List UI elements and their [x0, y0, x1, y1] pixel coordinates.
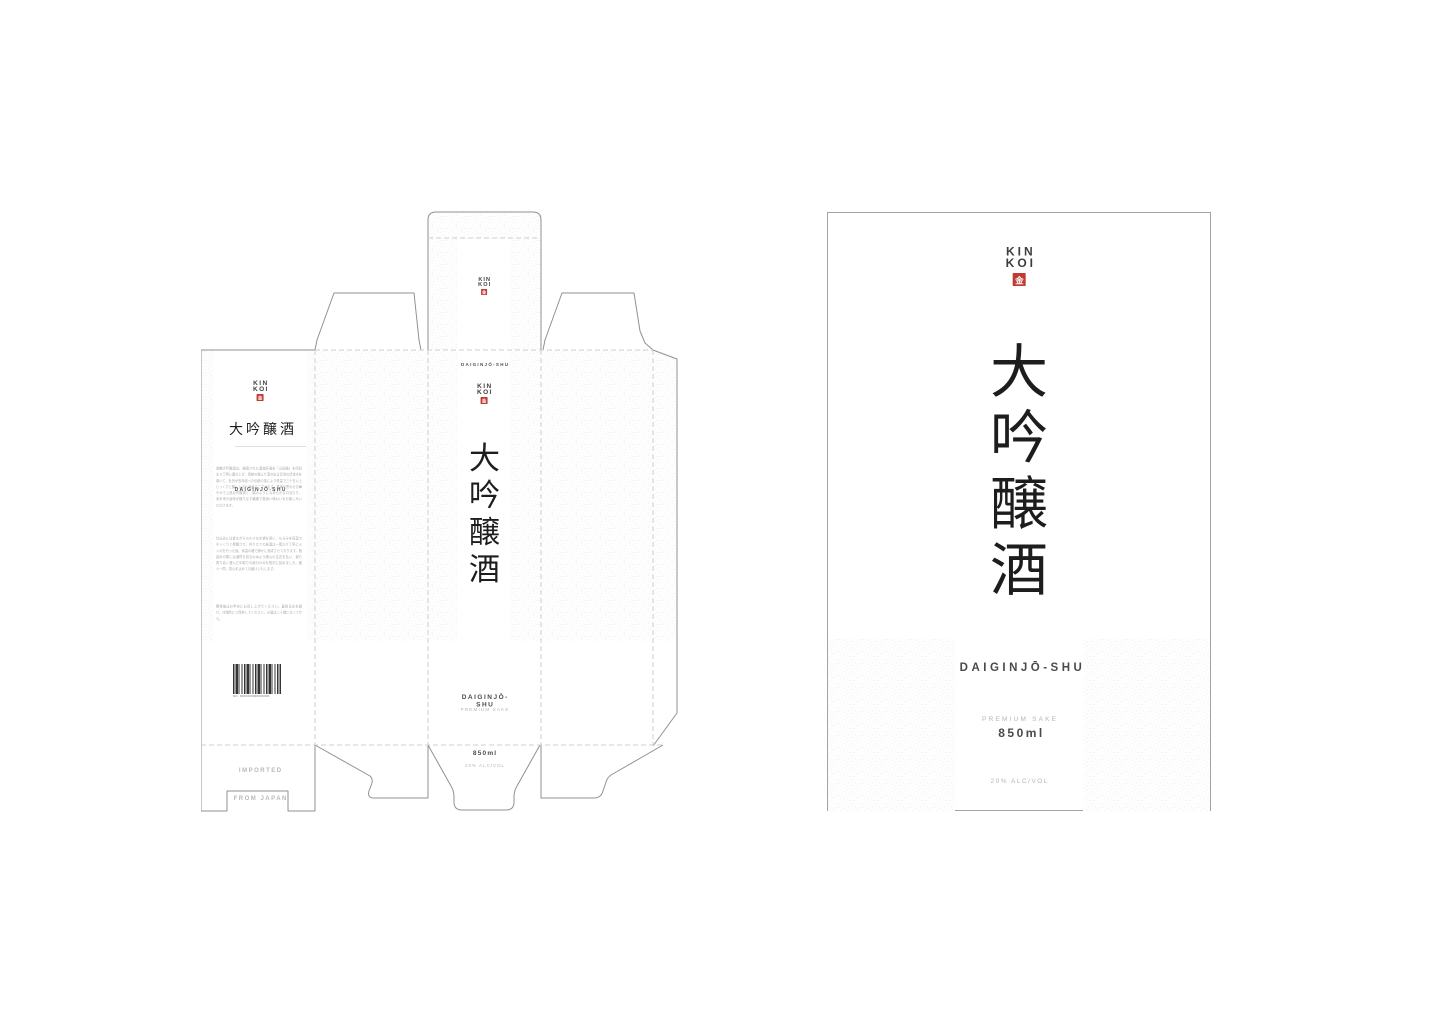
- brand-name-line2: KOI: [251, 386, 268, 392]
- front-kanji-4: 酒: [428, 554, 541, 585]
- back-panel-paragraph-3: 開栓後はお早めにお召し上がりください。直射日光を避け、冷暗所にて保存してください…: [216, 604, 302, 636]
- mockup-kanji-4: 酒: [828, 542, 1210, 600]
- back-panel-paragraph-1: 金鯉大吟醸酒は、厳選された酒造好適米「山田錦」を四割まで丁寧に磨き上げ、霊峰の麓…: [216, 466, 302, 524]
- back-panel-logo: KIN KOI 金: [213, 380, 307, 422]
- front-panel-logo: KIN KOI 金: [428, 383, 541, 425]
- front-abv: 20% ALC/VOL: [428, 727, 541, 809]
- brand-seal-icon: 金: [1012, 273, 1025, 286]
- design-canvas: KIN KOI 金 DAIGINJŌ-SHU KIN KOI 金 大吟醸酒 DA…: [0, 0, 1440, 1024]
- front-kanji-1: 大: [428, 443, 541, 474]
- divider-line: [235, 446, 306, 447]
- side2-top-flap-outline: [543, 293, 653, 350]
- imported-from-japan: IMPORTED FROM JAPAN: [201, 711, 319, 932]
- side2-bottom-flap-outline: [541, 745, 663, 798]
- mockup-volume: 850ml: [828, 726, 1213, 740]
- brand-seal-icon: 金: [257, 394, 264, 401]
- mockup-romaji: DAIGINJŌ-SHU: [828, 662, 1214, 674]
- mockup-abv: 20% ALC/VOL: [828, 741, 1210, 828]
- tuck-flap-logo: KIN KOI 金: [428, 277, 541, 313]
- side1-top-flap-outline: [315, 293, 421, 350]
- mockup-front-panel: KIN KOI 金 大 吟 醸 酒 DAIGINJŌ-SHU PREMIUM S…: [827, 212, 1211, 811]
- brand-name-line2: KOI: [477, 282, 491, 287]
- barcode: [233, 664, 281, 694]
- brand-name-line2: KOI: [476, 389, 493, 395]
- mockup-kanji-3: 醸: [828, 476, 1210, 534]
- back-panel-paragraph-2: 仕込みには昔ながらの小さな木槽を用い、もろみを低温でゆっくりと発酵させ、搾りたて…: [216, 536, 302, 592]
- brand-seal-icon: 金: [481, 397, 488, 404]
- side1-bottom-flap-outline: [315, 745, 428, 798]
- mockup-logo: KIN KOI 金: [828, 246, 1210, 326]
- mockup-kanji-2: 吟: [828, 410, 1210, 468]
- front-kanji-3: 醸: [428, 517, 541, 548]
- brand-name-line2: KOI: [1002, 258, 1035, 270]
- brand-seal-icon: 金: [482, 289, 488, 295]
- mockup-kanji-1: 大: [828, 344, 1210, 402]
- back-panel-kanji-title: 大吟醸酒: [201, 419, 322, 439]
- front-kanji-2: 吟: [428, 480, 541, 511]
- barcode-label: NO. 0000000000000000: [233, 695, 281, 698]
- seigaiha-pattern-glue-flap: [653, 350, 677, 641]
